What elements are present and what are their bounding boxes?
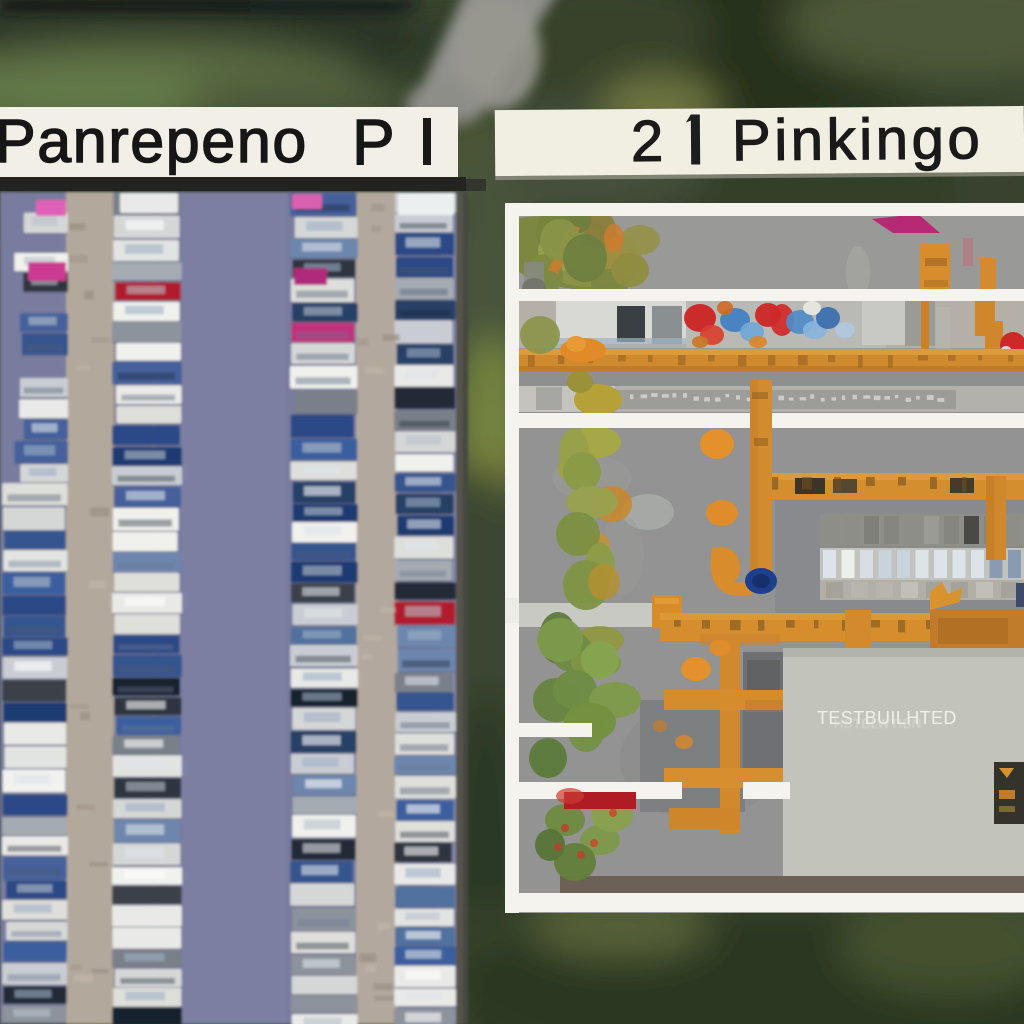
svg-text:2: 2 (631, 109, 664, 174)
svg-text:Panrepeno: Panrepeno (0, 107, 308, 175)
svg-text:Pinkingo: Pinkingo (732, 106, 984, 173)
svg-text:P: P (352, 106, 395, 178)
svg-text:HSTBLWTIBN: HSTBLWTIBN (834, 716, 922, 731)
